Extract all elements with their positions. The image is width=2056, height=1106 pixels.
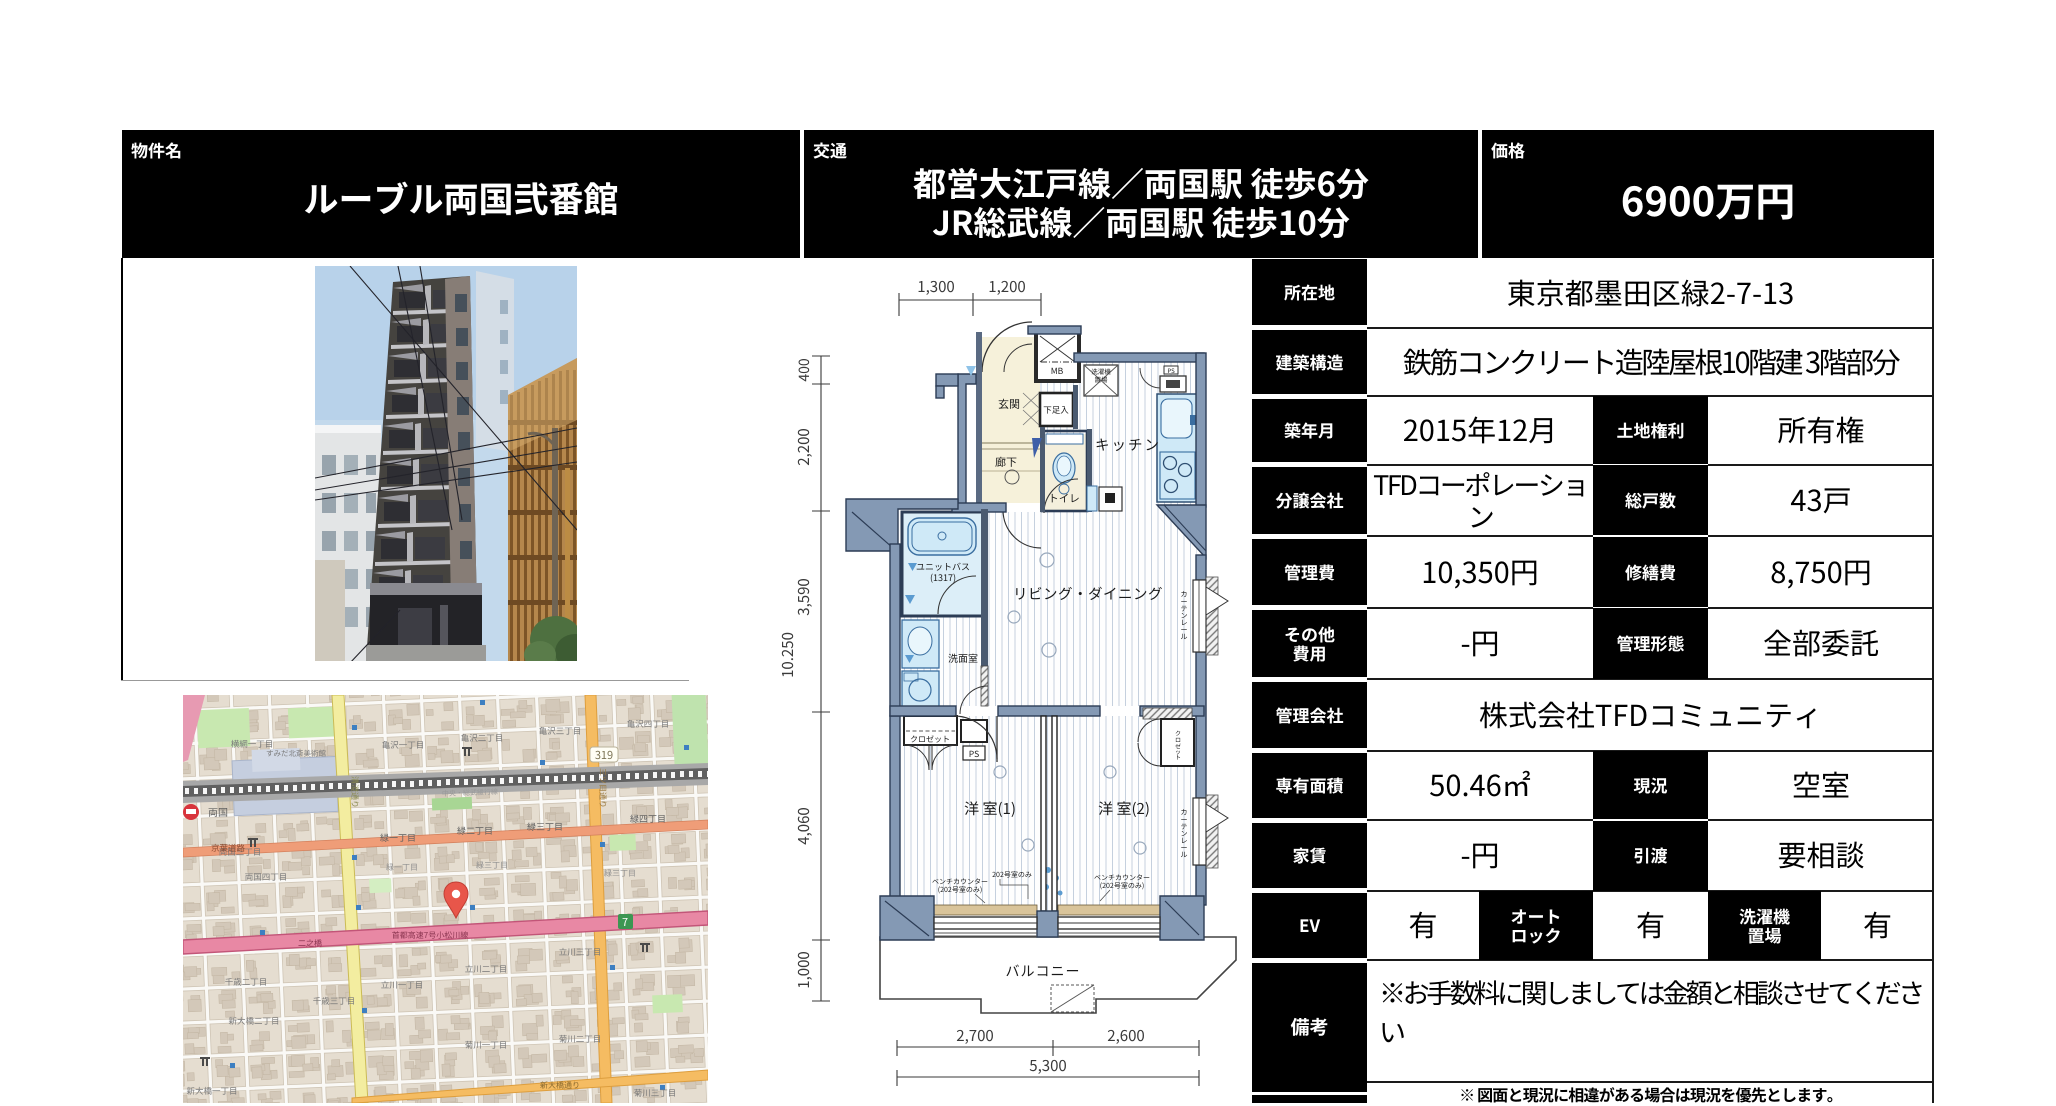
svg-text:洋 室(2): 洋 室(2) — [1098, 798, 1150, 819]
svg-text:立川二丁目: 立川二丁目 — [465, 963, 508, 975]
svg-text:バルコニー: バルコニー — [1006, 961, 1081, 981]
svg-text:緑三丁目: 緑三丁目 — [527, 820, 563, 833]
svg-text:10.250: 10.250 — [780, 632, 798, 678]
svg-text:菊川三丁目: 菊川三丁目 — [634, 1087, 677, 1099]
svg-text:緑二丁目: 緑二丁目 — [457, 824, 493, 837]
svg-text:(202号室のみ): (202号室のみ) — [1100, 881, 1144, 891]
svg-text:(202号室のみ): (202号室のみ) — [938, 885, 982, 895]
svg-text:亀沢四丁目: 亀沢四丁目 — [627, 718, 670, 730]
svg-text:リビング・ダイニング: リビング・ダイニング — [1013, 583, 1163, 604]
svg-text:2,600: 2,600 — [1107, 1025, 1144, 1046]
svg-text:亀沢二丁目: 亀沢二丁目 — [461, 732, 504, 744]
svg-text:清澄通り: 清澄通り — [349, 776, 360, 808]
svg-text:緑一丁目: 緑一丁目 — [380, 831, 416, 844]
svg-text:7: 7 — [622, 914, 628, 930]
svg-text:洋 室(1): 洋 室(1) — [964, 798, 1016, 819]
svg-text:400: 400 — [794, 358, 814, 382]
svg-text:MB: MB — [1051, 365, 1064, 377]
svg-text:立川一丁目: 立川一丁目 — [381, 979, 424, 991]
svg-text:洗面室: 洗面室 — [948, 650, 978, 665]
svg-text:新大橋二丁目: 新大橋二丁目 — [228, 1015, 279, 1027]
svg-text:1,300: 1,300 — [917, 276, 954, 297]
svg-text:中央・総武緩行線: 中央・総武緩行線 — [442, 787, 498, 799]
svg-text:5,300: 5,300 — [1029, 1055, 1066, 1076]
svg-text:1,200: 1,200 — [988, 276, 1025, 297]
svg-text:菊川一丁目: 菊川一丁目 — [465, 1039, 508, 1051]
svg-text:PS: PS — [1167, 366, 1175, 375]
svg-text:カーテンレール: カーテンレール — [1179, 808, 1189, 858]
svg-text:トイレ: トイレ — [1048, 491, 1080, 506]
svg-text:クロゼット: クロゼット — [1174, 730, 1183, 761]
svg-text:三ツ目通り: 三ツ目通り — [597, 768, 608, 808]
svg-text:廊下: 廊下 — [995, 454, 1017, 470]
svg-text:キッチン: キッチン — [1095, 434, 1161, 455]
svg-text:千歳二丁目: 千歳二丁目 — [225, 976, 268, 988]
svg-text:首都高速7号小松川線: 首都高速7号小松川線 — [392, 930, 468, 941]
svg-text:亀沢三丁目: 亀沢三丁目 — [539, 725, 582, 737]
svg-text:京葉道路: 京葉道路 — [211, 842, 246, 854]
svg-text:1,000: 1,000 — [793, 951, 814, 988]
svg-text:3,590: 3,590 — [793, 578, 814, 615]
svg-text:2,700: 2,700 — [956, 1025, 993, 1046]
svg-text:菊川二丁目: 菊川二丁目 — [559, 1033, 602, 1045]
svg-text:カーテンレール: カーテンレール — [1179, 590, 1189, 640]
svg-text:置場: 置場 — [1095, 374, 1109, 384]
svg-text:緑三丁目: 緑三丁目 — [604, 868, 636, 879]
svg-text:2,200: 2,200 — [793, 428, 814, 465]
svg-text:新大橋通り: 新大橋通り — [540, 1080, 580, 1091]
svg-text:亀沢一丁目: 亀沢一丁目 — [382, 739, 425, 751]
svg-text:両国: 両国 — [208, 804, 228, 819]
svg-text:二之橋: 二之橋 — [298, 938, 322, 949]
svg-text:立川三丁目: 立川三丁目 — [559, 946, 602, 958]
svg-text:緑三丁目: 緑三丁目 — [476, 860, 508, 871]
svg-text:319: 319 — [595, 747, 613, 763]
svg-text:クロゼット: クロゼット — [910, 734, 950, 745]
svg-text:4,060: 4,060 — [793, 807, 814, 844]
svg-text:玄関: 玄関 — [998, 396, 1020, 412]
svg-text:202号室のみ: 202号室のみ — [992, 870, 1032, 880]
svg-text:両国四丁目: 両国四丁目 — [245, 871, 288, 883]
svg-text:下足入: 下足入 — [1043, 404, 1069, 416]
svg-text:PS: PS — [969, 748, 979, 760]
svg-text:(1317): (1317) — [930, 571, 956, 584]
svg-text:緑四丁目: 緑四丁目 — [630, 812, 666, 825]
svg-text:千歳三丁目: 千歳三丁目 — [313, 995, 356, 1007]
svg-text:緑一丁目: 緑一丁目 — [386, 862, 418, 873]
svg-text:新大橋一丁目: 新大橋一丁目 — [186, 1085, 237, 1097]
svg-text:すみだ北斎美術館: すみだ北斎美術館 — [266, 748, 326, 759]
